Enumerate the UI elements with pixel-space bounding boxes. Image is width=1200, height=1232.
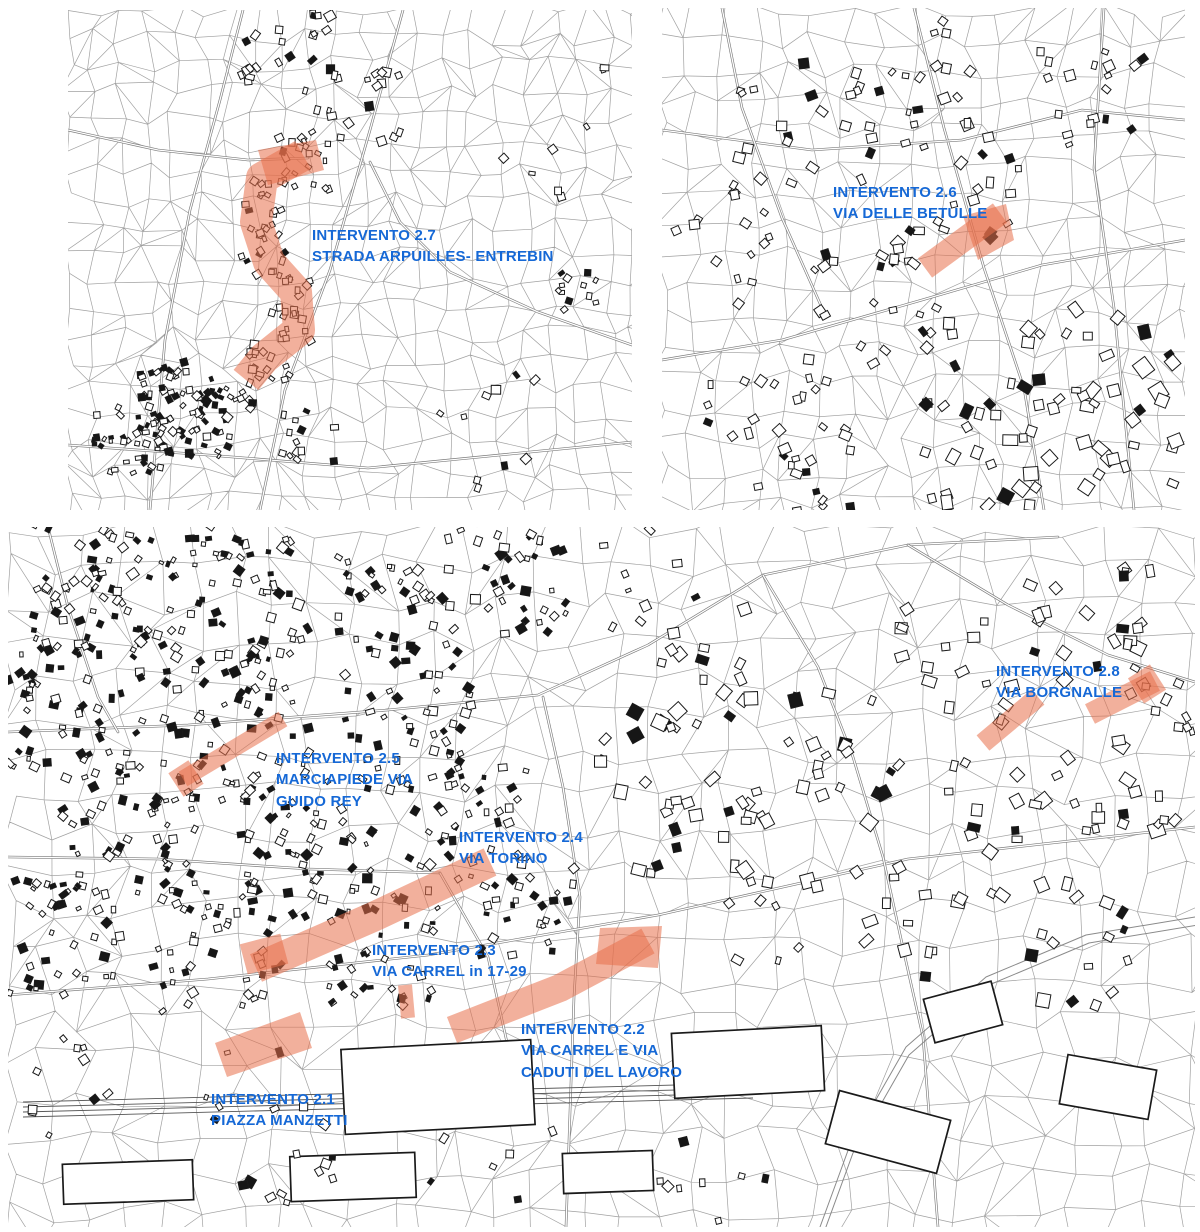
zone-intervento-2-7 [258,140,324,185]
label-intervento-2-4: INTERVENTO 2.4 VIA TORINO [459,827,583,870]
map-panel-aosta-centro: INTERVENTO 2.5 MARCIAPIEDE VIA GUIDO REY… [8,527,1195,1227]
zone-intervento-2-2 [596,926,662,968]
zone-intervento-2-5 [176,772,196,785]
label-intervento-2-5: INTERVENTO 2.5 MARCIAPIEDE VIA GUIDO REY [276,748,413,812]
label-intervento-2-2: INTERVENTO 2.2 VIA CARREL E VIA CADUTI D… [521,1019,682,1083]
map-drawing-aosta-centro [8,527,1195,1227]
map-panel-strada-arpuilles-entrebin: INTERVENTO 2.7 STRADA ARPUILLES- ENTREBI… [68,10,632,510]
zone-intervento-2-5 [183,719,283,779]
label-intervento-2-3: INTERVENTO 2.3 VIA CARREL in 17-29 [372,940,527,983]
map-panel-via-delle-betulle: INTERVENTO 2.6 VIA DELLE BETULLE [662,8,1185,510]
page-canvas: INTERVENTO 2.7 STRADA ARPUILLES- ENTREBI… [0,0,1200,1232]
zone-intervento-2-3 [405,985,408,1018]
label-intervento-2-8: INTERVENTO 2.8 VIA BORGNALLE [996,661,1122,704]
label-intervento-2-1: INTERVENTO 2.1 PIAZZA MANZETTI [211,1089,348,1132]
label-intervento-2-6: INTERVENTO 2.6 VIA DELLE BETULLE [833,182,988,225]
zone-intervento-2-4 [260,939,268,969]
label-intervento-2-7: INTERVENTO 2.7 STRADA ARPUILLES- ENTREBI… [312,225,554,268]
zone-intervento-2-8 [1136,677,1158,691]
map-drawing-via-delle-betulle [662,8,1185,510]
